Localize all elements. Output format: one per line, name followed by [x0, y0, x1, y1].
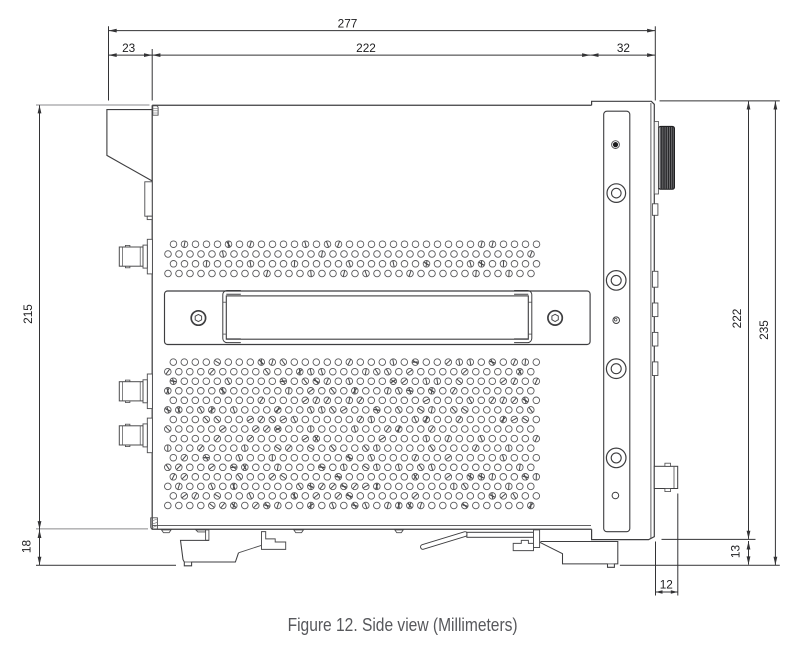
svg-text:13: 13 — [728, 545, 742, 559]
svg-text:277: 277 — [338, 16, 358, 30]
svg-text:215: 215 — [21, 304, 35, 324]
svg-text:18: 18 — [20, 540, 34, 554]
svg-text:Figure 12. Side view (Millimet: Figure 12. Side view (Millimeters) — [288, 614, 518, 635]
svg-text:32: 32 — [617, 41, 630, 55]
svg-text:222: 222 — [356, 41, 376, 55]
svg-text:235: 235 — [757, 320, 771, 340]
svg-text:12: 12 — [660, 577, 673, 591]
svg-text:222: 222 — [730, 309, 744, 329]
svg-text:23: 23 — [122, 41, 136, 55]
